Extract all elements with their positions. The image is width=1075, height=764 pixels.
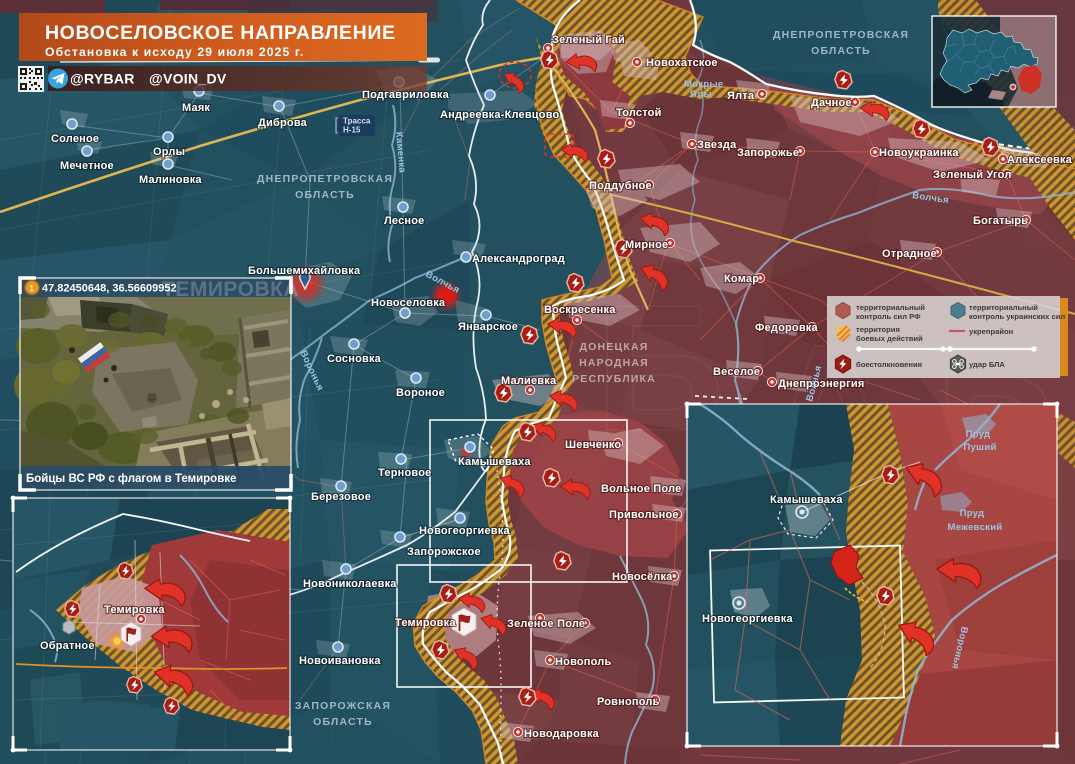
svg-text:ОБЛАСТЬ: ОБЛАСТЬ [295,189,355,201]
svg-text:Терновое: Терновое [378,467,431,479]
svg-text:Веселое: Веселое [713,366,760,378]
svg-text:Большемихайловка: Большемихайловка [248,265,361,277]
svg-text:территория: территория [856,325,900,334]
svg-text:Пруд: Пруд [960,508,985,519]
svg-text:@RYBAR: @RYBAR [70,71,135,87]
svg-text:Березовое: Березовое [311,491,371,503]
svg-text:Комар: Комар [724,273,759,285]
svg-text:Темировка: Темировка [104,604,165,616]
svg-text:Обратное: Обратное [40,640,95,652]
svg-text:территориальный: территориальный [969,303,1038,312]
svg-text:Толстой: Толстой [616,107,662,119]
svg-text:Н-15: Н-15 [343,126,361,135]
svg-text:Андреевка-Клевцово: Андреевка-Клевцово [440,109,560,121]
svg-text:Вороное: Вороное [396,387,445,399]
svg-text:Зеленое Поле: Зеленое Поле [507,618,585,630]
svg-text:Новогеоргиевка: Новогеоргиевка [419,525,510,537]
svg-text:47.82450648, 36.56609952: 47.82450648, 36.56609952 [42,283,177,295]
svg-text:ОБЛАСТЬ: ОБЛАСТЬ [313,716,373,728]
svg-text:Днепроэнергия: Днепроэнергия [778,378,864,390]
svg-text:удар БЛА: удар БЛА [969,360,1005,369]
svg-text:Малиевка: Малиевка [501,375,557,387]
svg-text:Мирное: Мирное [625,239,668,251]
svg-text:Новополь: Новополь [555,656,611,668]
svg-text:Дачное: Дачное [811,97,852,109]
svg-text:Соленое: Соленое [51,133,99,145]
svg-text:Пруд: Пруд [966,429,991,440]
svg-text:НАРОДНАЯ: НАРОДНАЯ [579,357,649,369]
svg-text:Январское: Январское [458,321,518,333]
svg-text:Запорожье: Запорожье [737,147,799,159]
svg-text:Вольное Поле: Вольное Поле [601,483,681,495]
svg-text:Новодаровка: Новодаровка [524,728,600,740]
svg-text:территориальный: территориальный [856,303,925,312]
svg-text:Богатырь: Богатырь [973,215,1028,227]
svg-text:Мечетное: Мечетное [60,160,114,172]
svg-text:Звезда: Звезда [697,139,737,151]
svg-text:Малиновка: Малиновка [139,174,202,186]
svg-text:ТЕМИРОВКА: ТЕМИРОВКА [162,278,299,301]
svg-text:Зеленый Гай: Зеленый Гай [552,34,625,46]
svg-text:Шевченко: Шевченко [565,439,621,451]
svg-text:Новониколаевка: Новониколаевка [303,578,397,590]
svg-text:@VOIN_DV: @VOIN_DV [149,71,227,87]
svg-text:Ялта: Ялта [727,90,755,102]
svg-text:Темировка: Темировка [395,617,456,629]
svg-text:контроль украинских сил: контроль украинских сил [969,312,1065,321]
svg-text:боевых действий: боевых действий [856,334,923,343]
svg-text:ЗАПОРОЖСКАЯ: ЗАПОРОЖСКАЯ [295,700,391,712]
svg-text:Орлы: Орлы [153,146,185,158]
svg-text:Лесное: Лесное [384,215,425,227]
svg-text:укрепрайон: укрепрайон [969,327,1014,336]
svg-text:НОВОСЕЛОВСКОЕ НАПРАВЛЕНИЕ: НОВОСЕЛОВСКОЕ НАПРАВЛЕНИЕ [45,22,396,44]
svg-text:Запорожское: Запорожское [407,546,481,558]
svg-text:Ялы: Ялы [690,89,712,100]
svg-text:Зеленый Угол: Зеленый Угол [933,169,1012,181]
svg-text:Новохатское: Новохатское [646,57,718,69]
svg-text:Межевский: Межевский [948,522,1003,533]
svg-text:Бойцы ВС РФ с флагом в Темиров: Бойцы ВС РФ с флагом в Темировке [26,473,236,485]
svg-text:Федоровка: Федоровка [755,322,819,334]
svg-text:РЕСПУБЛИКА: РЕСПУБЛИКА [572,373,656,385]
svg-text:Новоукраинка: Новоукраинка [879,147,959,159]
svg-text:ДОНЕЦКАЯ: ДОНЕЦКАЯ [579,341,648,353]
svg-text:боестолкновения: боестолкновения [856,360,922,369]
svg-text:Маяк: Маяк [182,102,210,114]
svg-text:ДНЕПРОПЕТРОВСКАЯ: ДНЕПРОПЕТРОВСКАЯ [257,173,393,185]
svg-text:Обстановка к исходу 29 июля 20: Обстановка к исходу 29 июля 2025 г. [45,45,304,59]
svg-text:контроль сил РФ: контроль сил РФ [856,312,921,321]
svg-text:Камышеваха: Камышеваха [458,456,531,468]
svg-text:Отрадное: Отрадное [882,248,937,260]
svg-text:ОБЛАСТЬ: ОБЛАСТЬ [811,45,871,57]
svg-text:Трасса: Трасса [343,117,371,126]
svg-text:Александроград: Александроград [472,253,565,265]
svg-text:Воскресенка: Воскресенка [544,304,616,316]
svg-text:1: 1 [30,284,35,293]
svg-text:Ровнополь: Ровнополь [597,696,660,708]
svg-text:Привольное: Привольное [609,509,679,521]
svg-text:Поддубное: Поддубное [589,180,652,192]
svg-text:Пуший: Пуший [963,442,996,453]
svg-text:Сосновка: Сосновка [327,353,382,365]
svg-text:Новогеоргиевка: Новогеоргиевка [702,613,793,625]
svg-text:Алексеевка: Алексеевка [1007,154,1073,166]
svg-text:Диброва: Диброва [258,117,308,129]
svg-text:Камышеваха: Камышеваха [770,494,843,506]
svg-text:ДНЕПРОПЕТРОВСКАЯ: ДНЕПРОПЕТРОВСКАЯ [773,29,909,41]
svg-text:Новоивановка: Новоивановка [299,655,381,667]
svg-text:Новоселовка: Новоселовка [371,297,446,309]
svg-text:Новосёлка: Новосёлка [612,571,673,583]
